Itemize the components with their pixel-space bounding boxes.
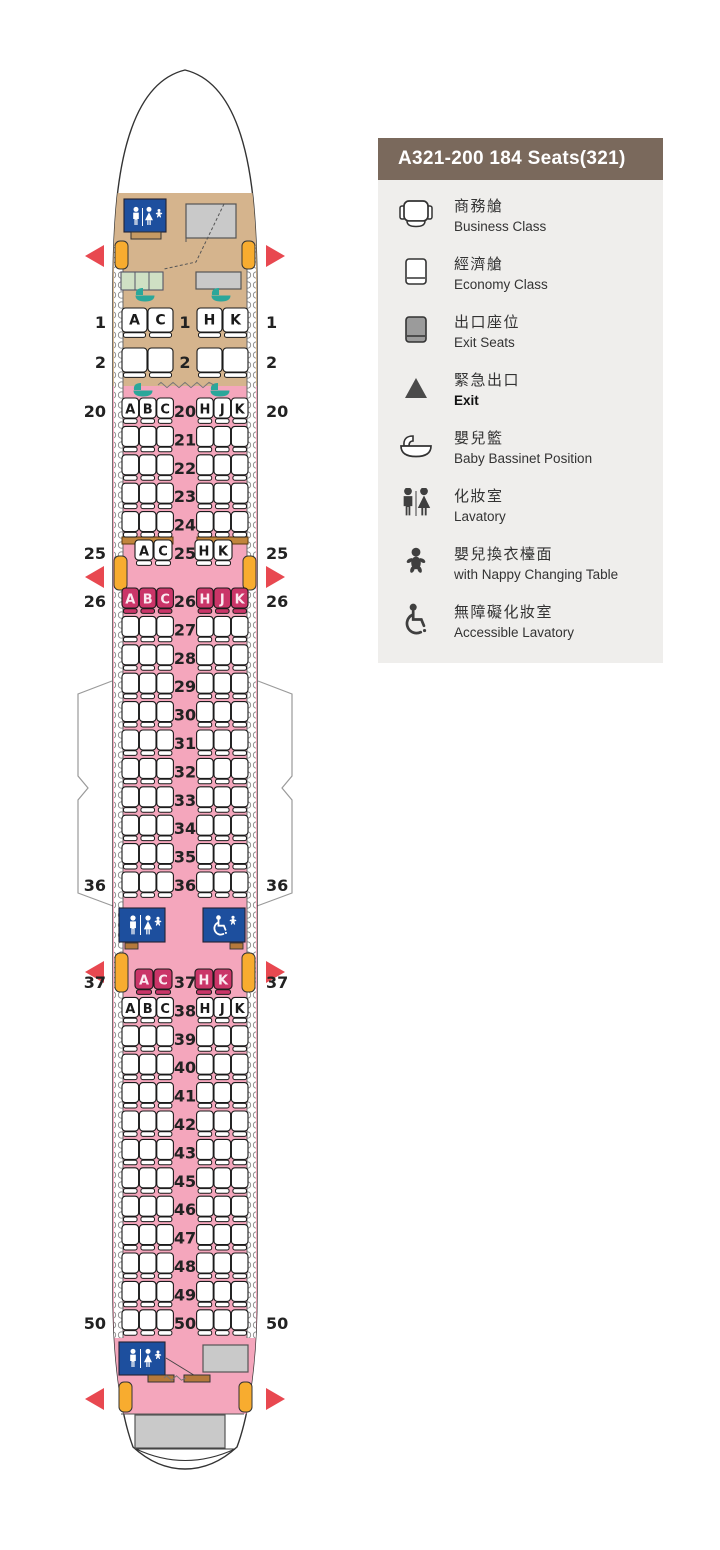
row-number: 2 (95, 353, 106, 372)
seat-24-1 (122, 512, 139, 537)
aft-galley-right (203, 1345, 248, 1372)
row-21: 21 (122, 426, 248, 451)
seat-24-6 (231, 512, 248, 537)
seat-31-4 (197, 730, 214, 755)
seat-45-4 (197, 1168, 214, 1193)
row-number: 2 (266, 353, 277, 372)
mid-accessible-lavatory (203, 908, 245, 942)
seat-30-4 (197, 702, 214, 727)
seat-24-2 (139, 512, 156, 537)
row-number: 32 (174, 762, 196, 781)
legend-item-business-class: 商務艙 Business Class (378, 185, 663, 243)
row-number: 20 (84, 402, 106, 421)
seat-33-1 (122, 787, 139, 812)
legend-item-lavatory: 化妝室 Lavatory (378, 475, 663, 533)
seat-34-1 (122, 815, 139, 840)
seat-23-4 (197, 483, 214, 508)
seat-29-1 (122, 673, 139, 698)
seat-letter: C (158, 974, 168, 989)
seat-30-6 (231, 702, 248, 727)
seat-48-1 (122, 1253, 139, 1278)
exit-arrow-left (85, 566, 104, 588)
forward-lavatory (124, 199, 166, 232)
row-32: 32 (122, 758, 248, 783)
seat-21-6 (231, 426, 248, 451)
seat-30-5 (214, 702, 231, 727)
seat-letter: C (155, 313, 165, 329)
row-number: 2 (179, 353, 190, 372)
seat-letter: K (218, 974, 229, 989)
exit-door-left (119, 1382, 132, 1412)
seat-21-2 (139, 426, 156, 451)
row-number: 45 (174, 1172, 196, 1191)
seat-30-1 (122, 702, 139, 727)
seat-47-5 (214, 1225, 231, 1250)
row-number: 21 (174, 430, 196, 449)
seat-letter: C (160, 403, 170, 418)
legend-item-text: 無障礙化妝室 Accessible Lavatory (454, 601, 574, 640)
row-number: 20 (174, 402, 196, 421)
row-number: 50 (174, 1314, 196, 1333)
seat-28-1 (122, 645, 139, 670)
seat-47-3 (157, 1225, 174, 1250)
forward-galley (186, 204, 236, 238)
seat-letter: H (199, 545, 210, 560)
seat-36-1 (122, 872, 139, 897)
seat-32-6 (231, 758, 248, 783)
seat-23-2 (139, 483, 156, 508)
seat-letter: J (219, 593, 225, 608)
seat-48-2 (139, 1253, 156, 1278)
seat-27-3 (157, 616, 174, 641)
seat-letter: K (235, 1002, 246, 1017)
seat-45-1 (122, 1168, 139, 1193)
seat-41-1 (122, 1083, 139, 1108)
seat-28-3 (157, 645, 174, 670)
seat-22-4 (197, 455, 214, 480)
row-46: 46 (122, 1196, 248, 1221)
seat-letter: A (139, 545, 149, 560)
seat-32-1 (122, 758, 139, 783)
row-24: 24 (122, 512, 248, 537)
seat-27-6 (231, 616, 248, 641)
row-48: 48 (122, 1253, 248, 1278)
seat-31-3 (157, 730, 174, 755)
seat-50-2 (139, 1310, 156, 1335)
legend-item-exit-seats: 出口座位 Exit Seats (378, 301, 663, 359)
legend-item-exit: 緊急出口 Exit (378, 359, 663, 417)
seat-letter: C (158, 545, 168, 560)
legend-label-en: Business Class (454, 219, 546, 234)
legend-label-zh: 嬰兒籃 (454, 427, 592, 448)
exit-door-right (242, 953, 255, 992)
row-number: 25 (174, 544, 196, 563)
row-number: 1 (179, 313, 190, 332)
legend-item-text: 嬰兒換衣檯面 with Nappy Changing Table (454, 543, 618, 582)
row-number: 36 (84, 876, 106, 895)
seat-32-3 (157, 758, 174, 783)
seat-2-3 (197, 348, 222, 377)
row-45: 45 (122, 1168, 248, 1193)
legend-label-en: Baby Bassinet Position (454, 451, 592, 466)
exit-arrow-left (85, 245, 104, 267)
row-31: 31 (122, 730, 248, 755)
row-39: 39 (122, 1026, 248, 1051)
seat-letter: A (125, 1002, 135, 1017)
seat-40-6 (231, 1054, 248, 1079)
row-number: 24 (174, 516, 196, 535)
seat-36-6 (231, 872, 248, 897)
seat-48-5 (214, 1253, 231, 1278)
seat-43-4 (197, 1139, 214, 1164)
exit-door-right (243, 556, 256, 590)
seat-letter: H (199, 403, 210, 418)
seat-35-5 (214, 844, 231, 869)
row-38: ABCHJK38 (122, 997, 248, 1022)
seat-34-3 (157, 815, 174, 840)
seat-letter: B (143, 403, 153, 418)
row-23: 23 (122, 483, 248, 508)
exit-door-left (115, 241, 128, 269)
seat-letter: A (125, 593, 135, 608)
seat-33-3 (157, 787, 174, 812)
seat-28-6 (231, 645, 248, 670)
seat-40-2 (139, 1054, 156, 1079)
seat-21-5 (214, 426, 231, 451)
seat-47-1 (122, 1225, 139, 1250)
row-number: 25 (84, 544, 106, 563)
seat-35-4 (197, 844, 214, 869)
seat-22-1 (122, 455, 139, 480)
seat-letter: B (143, 1002, 153, 1017)
row-35: 35 (122, 844, 248, 869)
seat-letter: B (143, 593, 153, 608)
woman-icon (418, 488, 430, 515)
legend-label-en: Lavatory (454, 509, 506, 524)
row-number: 50 (266, 1314, 288, 1333)
legend-item-text: 化妝室 Lavatory (454, 485, 506, 524)
exit-seat-icon (378, 315, 454, 345)
seat-47-2 (139, 1225, 156, 1250)
row-number: 28 (174, 649, 196, 668)
forward-shelf (131, 232, 161, 239)
seat-42-6 (231, 1111, 248, 1136)
seat-43-2 (139, 1139, 156, 1164)
row-number: 25 (266, 544, 288, 563)
row-number: 31 (174, 734, 196, 753)
seat-21-3 (157, 426, 174, 451)
right-wing (257, 681, 292, 906)
seat-letter: J (219, 403, 225, 418)
seat-42-3 (157, 1111, 174, 1136)
row-47: 47 (122, 1225, 248, 1250)
legend-title: A321-200 184 Seats(321) (378, 138, 663, 180)
row-number: 49 (174, 1285, 196, 1304)
row-number: 42 (174, 1115, 196, 1134)
seat-letter: C (160, 593, 170, 608)
seat-39-3 (157, 1026, 174, 1051)
legend-item-baby-bassinet: 嬰兒籃 Baby Bassinet Position (378, 417, 663, 475)
seat-39-6 (231, 1026, 248, 1051)
seat-31-6 (231, 730, 248, 755)
seat-46-6 (231, 1196, 248, 1221)
seat-letter: A (129, 313, 140, 329)
row-22: 22 (122, 455, 248, 480)
seat-48-3 (157, 1253, 174, 1278)
row-number: 22 (174, 459, 196, 478)
seat-33-6 (231, 787, 248, 812)
row-number: 29 (174, 677, 196, 696)
legend-label-zh: 無障礙化妝室 (454, 601, 574, 622)
seat-43-3 (157, 1139, 174, 1164)
row-number: 46 (174, 1200, 196, 1219)
lavatory-icon (378, 488, 454, 520)
aft-shelf-right (184, 1375, 210, 1382)
seat-49-5 (214, 1281, 231, 1306)
baby-icon (406, 548, 426, 574)
row-28: 28 (122, 645, 248, 670)
row-43: 43 (122, 1139, 248, 1164)
seat-2-4 (223, 348, 248, 377)
legend-label-en: Exit Seats (454, 335, 520, 350)
seat-27-5 (214, 616, 231, 641)
legend-label-zh: 嬰兒換衣檯面 (454, 543, 618, 564)
seat-39-2 (139, 1026, 156, 1051)
seat-36-5 (214, 872, 231, 897)
seat-31-2 (139, 730, 156, 755)
seat-35-3 (157, 844, 174, 869)
legend-item-nappy-changing: 嬰兒換衣檯面 with Nappy Changing Table (378, 533, 663, 591)
row-29: 29 (122, 673, 248, 698)
seat-29-2 (139, 673, 156, 698)
bassinet-icon (378, 433, 454, 459)
row-number: 35 (174, 848, 196, 867)
seat-36-3 (157, 872, 174, 897)
man-icon (404, 488, 413, 515)
seat-35-2 (139, 844, 156, 869)
seat-50-5 (214, 1310, 231, 1335)
seat-41-5 (214, 1083, 231, 1108)
seat-49-2 (139, 1281, 156, 1306)
left-wing (78, 681, 113, 906)
seat-27-2 (139, 616, 156, 641)
seat-47-4 (197, 1225, 214, 1250)
exit-arrow-right (266, 245, 285, 267)
seat-24-4 (197, 512, 214, 537)
seat-41-3 (157, 1083, 174, 1108)
row-number: 37 (174, 973, 196, 992)
seat-34-2 (139, 815, 156, 840)
seat-33-4 (197, 787, 214, 812)
seat-42-1 (122, 1111, 139, 1136)
row-number: 41 (174, 1087, 196, 1106)
seat-43-1 (122, 1139, 139, 1164)
exit-door-right (239, 1382, 252, 1412)
row-27: 27 (122, 616, 248, 641)
seat-letter: A (139, 974, 149, 989)
row-number: 1 (95, 313, 106, 332)
seat-33-5 (214, 787, 231, 812)
row-30: 30 (122, 702, 248, 727)
seat-31-5 (214, 730, 231, 755)
seat-49-6 (231, 1281, 248, 1306)
seat-46-3 (157, 1196, 174, 1221)
business-seat-icon (378, 199, 454, 229)
row-42: 42 (122, 1111, 248, 1136)
seat-letter: K (230, 313, 242, 329)
seat-47-6 (231, 1225, 248, 1250)
mid-shelf-left (125, 943, 138, 949)
seat-49-4 (197, 1281, 214, 1306)
seat-21-1 (122, 426, 139, 451)
seat-42-5 (214, 1111, 231, 1136)
seat-36-2 (139, 872, 156, 897)
seat-43-6 (231, 1139, 248, 1164)
seat-49-3 (157, 1281, 174, 1306)
seat-48-4 (197, 1253, 214, 1278)
legend-item-text: 經濟艙 Economy Class (454, 253, 548, 292)
seat-letter: K (218, 545, 229, 560)
seat-50-4 (197, 1310, 214, 1335)
row-number: 36 (266, 876, 288, 895)
seat-39-4 (197, 1026, 214, 1051)
seat-33-2 (139, 787, 156, 812)
legend-label-en: Economy Class (454, 277, 548, 292)
seat-27-1 (122, 616, 139, 641)
legend-label-zh: 商務艙 (454, 195, 546, 216)
row-number: 34 (174, 819, 196, 838)
seat-42-2 (139, 1111, 156, 1136)
exit-arrow-right (266, 1388, 285, 1410)
row-number: 26 (266, 592, 288, 611)
seat-28-4 (197, 645, 214, 670)
seat-45-6 (231, 1168, 248, 1193)
forward-stowage (121, 272, 163, 290)
seat-29-3 (157, 673, 174, 698)
legend-panel: A321-200 184 Seats(321) 商務艙 Business Cla… (378, 138, 663, 663)
legend-label-zh: 出口座位 (454, 311, 520, 332)
seat-22-3 (157, 455, 174, 480)
aft-galley (135, 1415, 225, 1448)
row-number: 23 (174, 487, 196, 506)
seat-letter: C (160, 1002, 170, 1017)
seat-39-5 (214, 1026, 231, 1051)
seat-43-5 (214, 1139, 231, 1164)
exit-door-right (242, 241, 255, 269)
seat-50-6 (231, 1310, 248, 1335)
wheelchair-icon (407, 604, 426, 633)
seat-letter: J (219, 1002, 225, 1017)
seat-41-4 (197, 1083, 214, 1108)
row-number: 38 (174, 1001, 196, 1020)
seat-46-5 (214, 1196, 231, 1221)
seat-24-5 (214, 512, 231, 537)
seat-32-5 (214, 758, 231, 783)
seat-48-6 (231, 1253, 248, 1278)
legend-item-text: 出口座位 Exit Seats (454, 311, 520, 350)
legend-item-text: 嬰兒籃 Baby Bassinet Position (454, 427, 592, 466)
legend-item-text: 緊急出口 Exit (454, 369, 520, 408)
seatmap-page: ACHK111222ABCHJK20202021222324ACHK252525… (0, 0, 720, 1550)
seat-letter: K (235, 593, 246, 608)
seat-49-1 (122, 1281, 139, 1306)
seat-22-6 (231, 455, 248, 480)
legend-item-text: 商務艙 Business Class (454, 195, 546, 234)
row-number: 43 (174, 1143, 196, 1162)
row-number: 30 (174, 706, 196, 725)
seat-46-1 (122, 1196, 139, 1221)
forward-galley-2 (196, 272, 241, 289)
legend-label-en: Exit (454, 393, 520, 408)
row-number: 1 (266, 313, 277, 332)
seat-23-5 (214, 483, 231, 508)
seat-41-6 (231, 1083, 248, 1108)
seat-29-6 (231, 673, 248, 698)
row-number: 36 (174, 876, 196, 895)
row-number: 27 (174, 620, 196, 639)
row-number: 33 (174, 791, 196, 810)
seat-45-5 (214, 1168, 231, 1193)
seat-27-4 (197, 616, 214, 641)
seat-50-1 (122, 1310, 139, 1335)
row-number: 20 (266, 402, 288, 421)
seat-30-2 (139, 702, 156, 727)
legend-item-accessible-lavatory: 無障礙化妝室 Accessible Lavatory (378, 591, 663, 649)
mid-shelf-right (230, 943, 243, 949)
seat-23-3 (157, 483, 174, 508)
seat-21-4 (197, 426, 214, 451)
seat-46-4 (197, 1196, 214, 1221)
seat-letter: H (204, 313, 216, 329)
seat-2-1 (122, 348, 147, 377)
aft-lavatory (119, 1342, 165, 1375)
seat-40-5 (214, 1054, 231, 1079)
row-number: 26 (84, 592, 106, 611)
row-number: 47 (174, 1229, 196, 1248)
seat-28-5 (214, 645, 231, 670)
row-number: 37 (266, 973, 288, 992)
legend-label-en: with Nappy Changing Table (454, 567, 618, 582)
row-number: 37 (84, 973, 106, 992)
legend-item-economy-class: 經濟艙 Economy Class (378, 243, 663, 301)
row-40: 40 (122, 1054, 248, 1079)
seat-42-4 (197, 1111, 214, 1136)
seat-30-3 (157, 702, 174, 727)
exit-door-left (115, 953, 128, 992)
seat-40-1 (122, 1054, 139, 1079)
accessible-lavatory-icon (378, 603, 454, 637)
seat-23-1 (122, 483, 139, 508)
seat-45-3 (157, 1168, 174, 1193)
row-number: 50 (84, 1314, 106, 1333)
exit-triangle-icon (378, 376, 454, 400)
exit-arrow-right (266, 566, 285, 588)
seat-letter: H (199, 593, 210, 608)
seat-28-2 (139, 645, 156, 670)
seat-letter: A (125, 403, 135, 418)
seat-35-6 (231, 844, 248, 869)
seat-29-5 (214, 673, 231, 698)
seat-34-5 (214, 815, 231, 840)
seat-39-1 (122, 1026, 139, 1051)
seat-45-2 (139, 1168, 156, 1193)
seat-24-3 (157, 512, 174, 537)
seat-35-1 (122, 844, 139, 869)
seat-36-4 (197, 872, 214, 897)
row-41: 41 (122, 1083, 248, 1108)
seat-23-6 (231, 483, 248, 508)
seat-46-2 (139, 1196, 156, 1221)
